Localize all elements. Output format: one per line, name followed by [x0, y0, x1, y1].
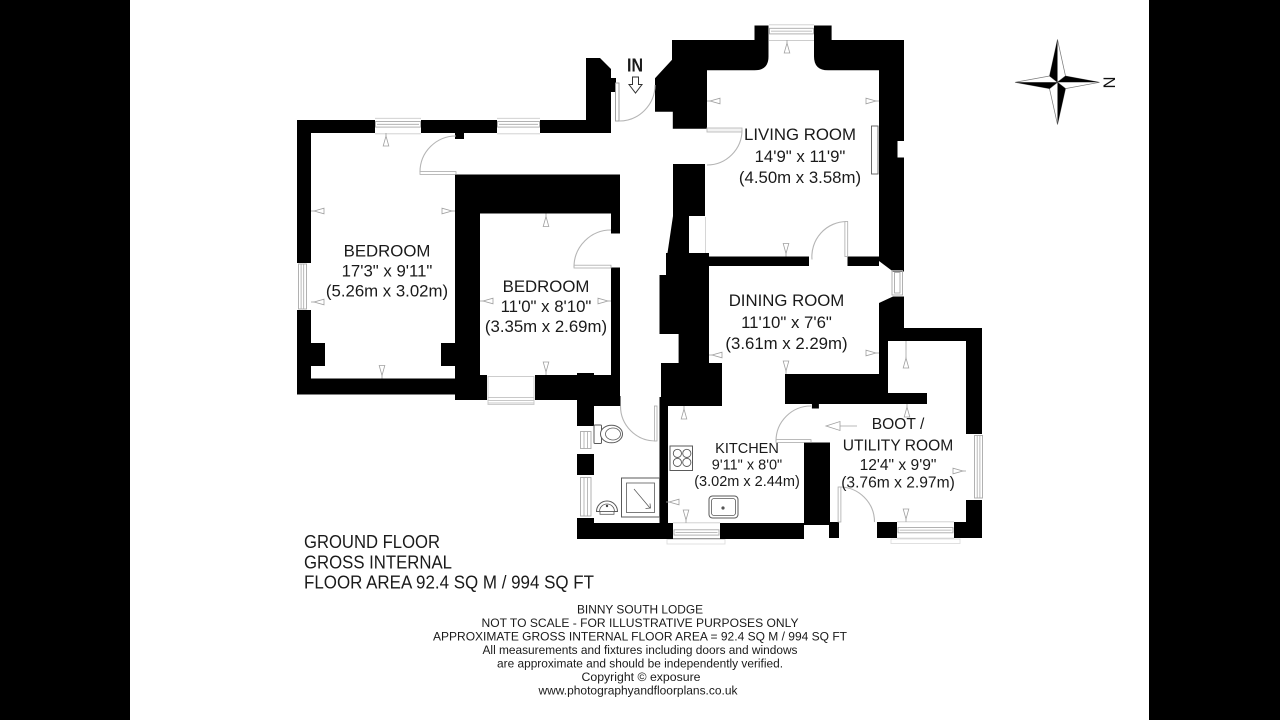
svg-text:BEDROOM: BEDROOM: [503, 277, 590, 296]
svg-text:KITCHEN: KITCHEN: [715, 441, 779, 457]
svg-text:BOOT /: BOOT /: [872, 416, 925, 433]
svg-text:14'9" x 11'9": 14'9" x 11'9": [755, 147, 846, 166]
svg-text:(3.02m x 2.44m): (3.02m x 2.44m): [694, 474, 800, 490]
svg-text:(4.50m x 3.58m): (4.50m x 3.58m): [739, 168, 861, 187]
svg-text:(3.76m x 2.97m): (3.76m x 2.97m): [841, 475, 955, 492]
svg-text:17'3" x 9'11": 17'3" x 9'11": [342, 262, 433, 281]
svg-text:Copyright © exposure: Copyright © exposure: [582, 670, 701, 684]
svg-text:9'11" x 8'0": 9'11" x 8'0": [712, 458, 782, 474]
svg-text:GROUND FLOOR: GROUND FLOOR: [304, 531, 440, 552]
svg-text:LIVING ROOM: LIVING ROOM: [744, 125, 856, 144]
svg-text:BINNY SOUTH LODGE: BINNY SOUTH LODGE: [577, 603, 703, 617]
svg-text:IN: IN: [627, 55, 643, 76]
svg-text:NOT TO SCALE - FOR ILLUSTRATIV: NOT TO SCALE - FOR ILLUSTRATIVE PURPOSES…: [482, 616, 799, 630]
svg-text:UTILITY ROOM: UTILITY ROOM: [843, 438, 954, 455]
svg-text:12'4" x 9'9": 12'4" x 9'9": [860, 457, 937, 474]
svg-text:(5.26m x 3.02m): (5.26m x 3.02m): [326, 282, 448, 301]
svg-text:(3.61m x 2.29m): (3.61m x 2.29m): [725, 334, 847, 353]
svg-text:11'0" x 8'10": 11'0" x 8'10": [501, 297, 592, 316]
svg-text:11'10" x 7'6": 11'10" x 7'6": [741, 313, 832, 332]
svg-text:www.photographyandfloorplans.c: www.photographyandfloorplans.co.uk: [538, 684, 739, 698]
svg-text:are approximate and should be: are approximate and should be independen…: [497, 657, 783, 671]
svg-text:N: N: [1100, 77, 1118, 89]
svg-text:DINING ROOM: DINING ROOM: [729, 291, 845, 310]
svg-text:FLOOR AREA 92.4 SQ M / 994 SQ: FLOOR AREA 92.4 SQ M / 994 SQ FT: [304, 572, 594, 593]
svg-text:(3.35m x 2.69m): (3.35m x 2.69m): [485, 317, 607, 336]
svg-text:GROSS INTERNAL: GROSS INTERNAL: [304, 551, 452, 572]
svg-text:All measurements and fixtures: All measurements and fixtures including …: [483, 643, 798, 657]
svg-text:BEDROOM: BEDROOM: [344, 242, 431, 261]
svg-text:APPROXIMATE GROSS INTERNAL FLO: APPROXIMATE GROSS INTERNAL FLOOR AREA = …: [433, 630, 848, 644]
